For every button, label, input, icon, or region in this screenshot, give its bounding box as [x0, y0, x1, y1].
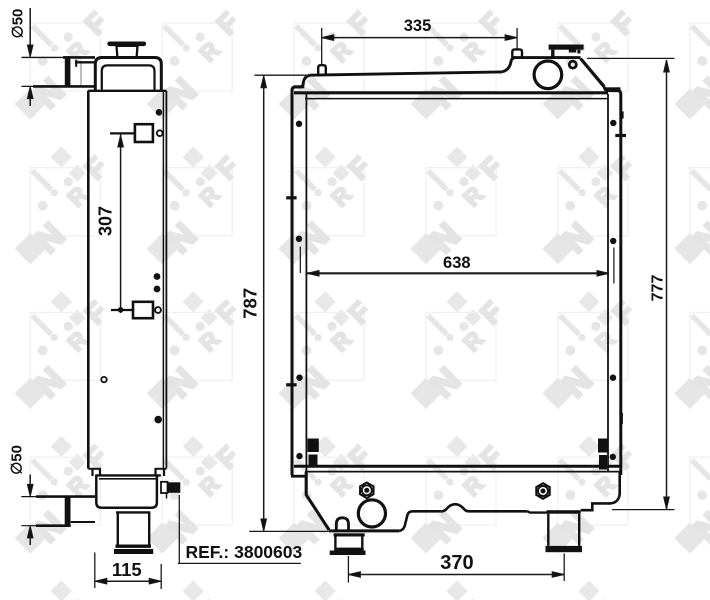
svg-text:335: 335: [404, 17, 432, 35]
svg-text:∅50: ∅50: [10, 9, 27, 39]
svg-text:638: 638: [443, 254, 471, 272]
svg-text:370: 370: [440, 552, 473, 574]
svg-text:787: 787: [240, 288, 261, 319]
svg-text:307: 307: [96, 206, 116, 236]
svg-text:REF.: 3800603: REF.: 3800603: [186, 542, 303, 562]
svg-text:∅50: ∅50: [8, 445, 25, 475]
svg-text:115: 115: [112, 559, 142, 580]
svg-text:777: 777: [650, 275, 667, 302]
